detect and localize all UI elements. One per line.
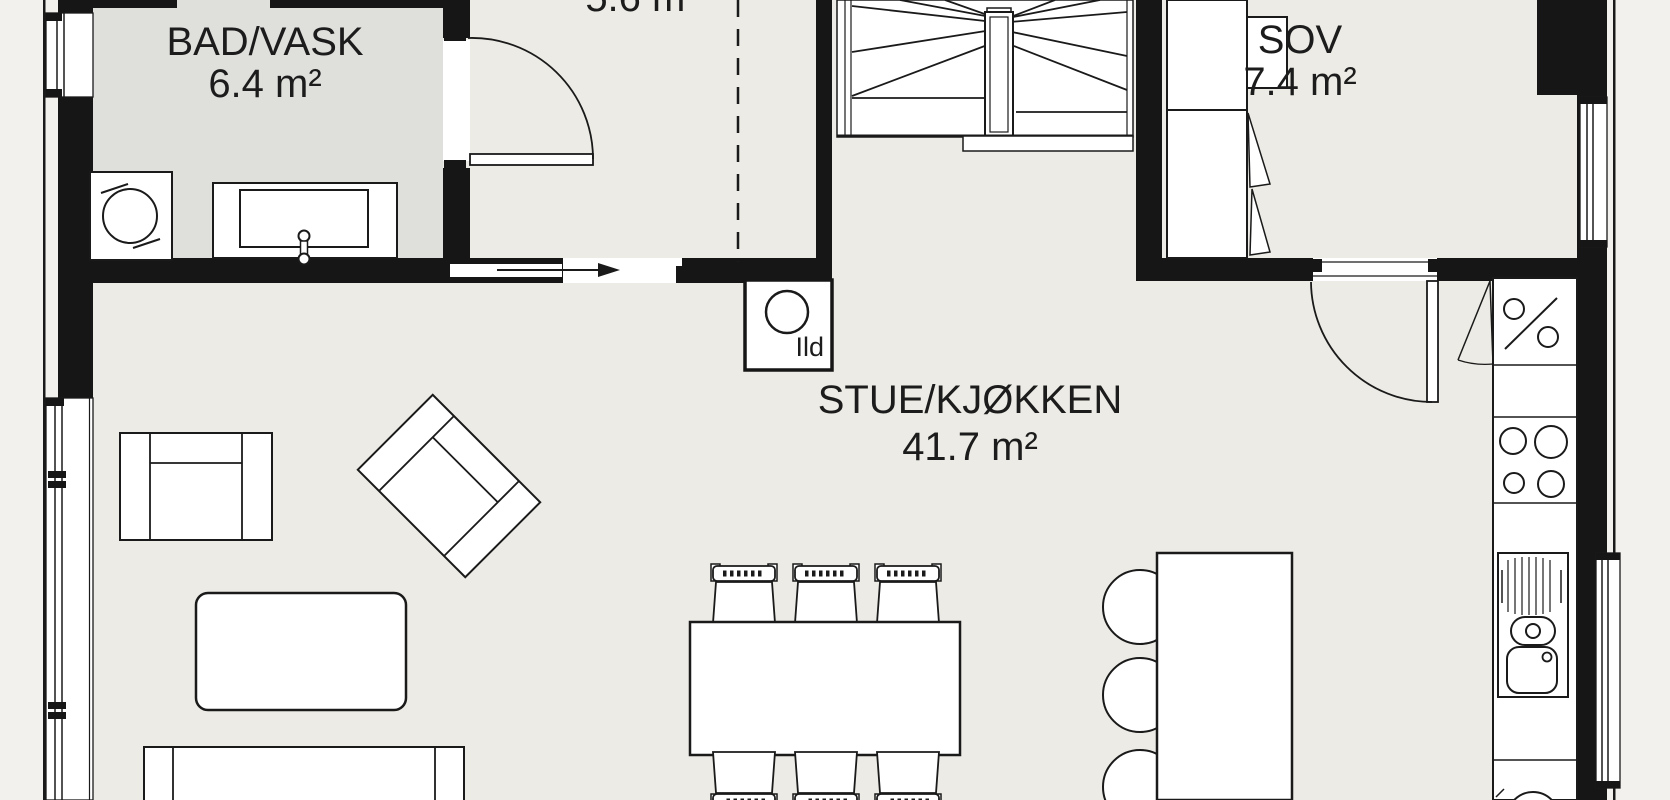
bathroom-name-label: BAD/VASK [166, 20, 363, 64]
closet-upper [1167, 0, 1247, 110]
bathroom-fixtures [90, 172, 397, 265]
left-cladding-line [43, 0, 46, 800]
sliding-door-jamb [676, 266, 682, 283]
floor-plan-page: Ild [0, 0, 1670, 800]
dining-chair [711, 564, 777, 623]
bedroom-name-label: SOV [1258, 18, 1343, 62]
counter-run [1493, 278, 1577, 800]
dining-chair [875, 564, 941, 623]
kitchen-sink-icon [1498, 553, 1568, 697]
dining-chair [793, 752, 859, 800]
bathroom-area-label: 6.4 m² [208, 62, 321, 106]
floor-plan-drawing: Ild [0, 0, 1670, 800]
bathroom-hall-wall-upper [443, 0, 470, 38]
fireplace: Ild [745, 280, 832, 370]
bedroom-window [1580, 97, 1607, 247]
coffee-table [196, 593, 406, 710]
stair-newel [985, 8, 1013, 137]
stair-bedroom-wall [1136, 0, 1162, 258]
stair-left-wall [816, 0, 832, 283]
living-name-label: STUE/KJØKKEN [818, 378, 1123, 422]
dining-chair [793, 564, 859, 623]
stair-landing-step [963, 136, 1133, 151]
kitchen-island [1103, 553, 1292, 800]
sofa [144, 747, 464, 800]
dining-table [690, 622, 960, 755]
bathroom-top-wall-right [270, 0, 445, 8]
bedroom-door-threshold [1313, 258, 1437, 281]
top-right-corner-block [1537, 0, 1579, 95]
living-room-window [46, 398, 93, 800]
bedroom-living-wall-left [1136, 258, 1313, 281]
bathroom-door-leaf [470, 154, 593, 165]
bathroom-top-wall-left [93, 0, 177, 8]
staircase [837, 0, 1133, 151]
kitchen-counter [1493, 278, 1577, 800]
fireplace-flue-icon [766, 291, 808, 333]
washing-machine-icon [90, 172, 172, 260]
bedroom-door-leaf [1427, 281, 1438, 402]
bathroom-door-opening [443, 40, 470, 161]
armchair [120, 433, 272, 540]
closet-lower [1167, 110, 1247, 258]
hall-area-label: 5.6 m² [585, 0, 698, 20]
kitchen-window [1596, 553, 1620, 788]
bathroom-window [46, 13, 93, 97]
fireplace-label: Ild [795, 332, 824, 362]
vanity-sink-icon [213, 183, 397, 265]
dining-chair [711, 752, 777, 800]
living-area-label: 41.7 m² [902, 425, 1038, 469]
island-counter [1157, 553, 1292, 800]
bathroom-hall-wall-lower [443, 168, 470, 258]
bedroom-area-label: 7.4 m² [1243, 60, 1356, 104]
dining-chair [875, 752, 941, 800]
dining-set [690, 564, 960, 800]
